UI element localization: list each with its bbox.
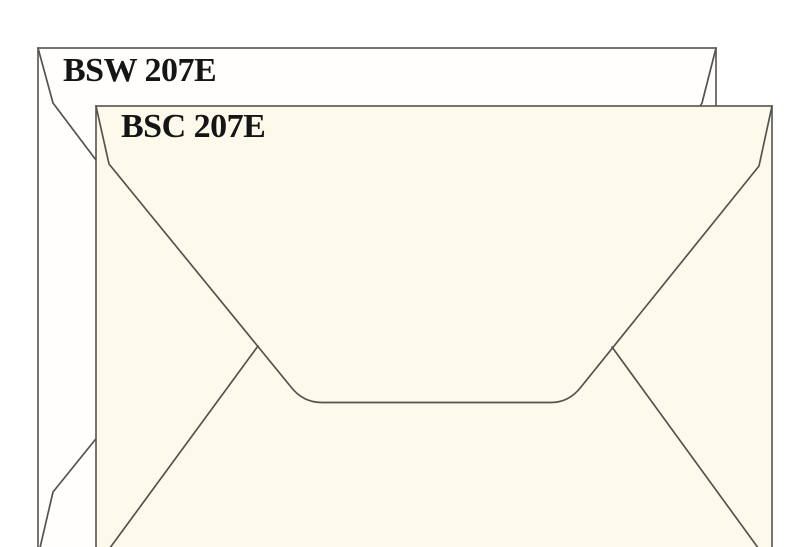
envelope-front-body xyxy=(96,106,772,547)
envelope-back-label: BSW 207E xyxy=(63,54,216,88)
envelope-front-label: BSC 207E xyxy=(121,110,265,144)
envelope-front xyxy=(96,106,772,547)
envelope-diagram: BSW 207E BSC 207E xyxy=(0,0,790,547)
